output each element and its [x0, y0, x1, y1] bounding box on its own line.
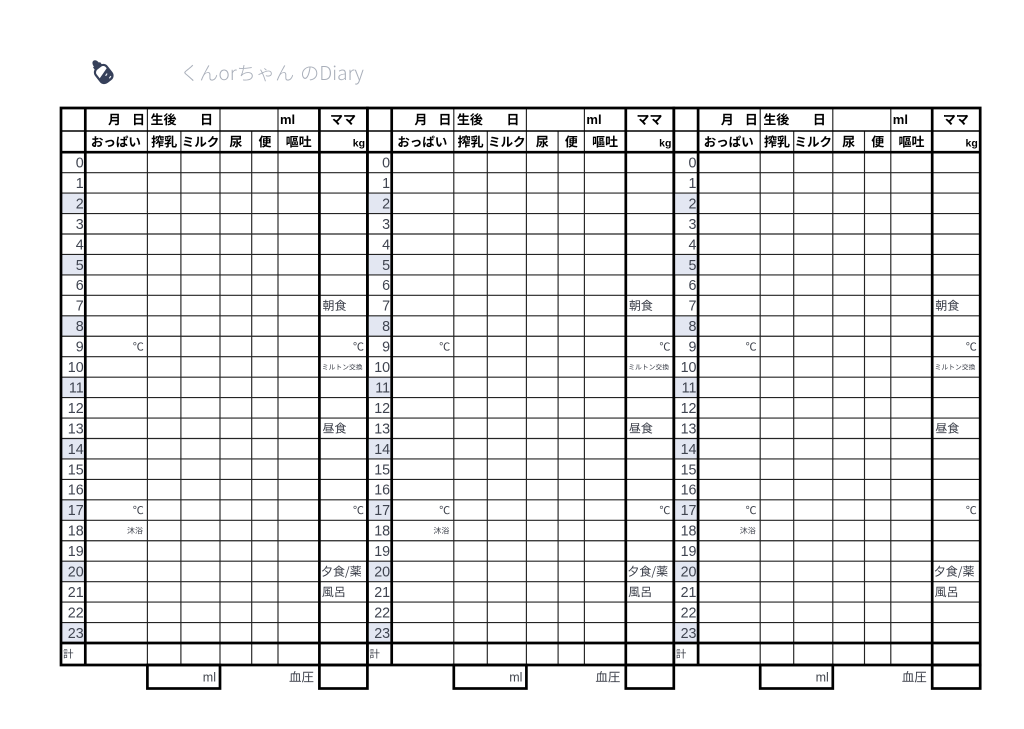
svg-text:9: 9: [382, 340, 390, 356]
svg-text:kg: kg: [353, 137, 365, 149]
svg-text:20: 20: [374, 565, 390, 581]
svg-text:ml: ml: [893, 112, 908, 127]
svg-text:14: 14: [374, 442, 390, 458]
svg-text:11: 11: [375, 380, 390, 396]
svg-text:16: 16: [681, 483, 697, 499]
svg-text:18: 18: [68, 524, 84, 540]
svg-text:2: 2: [382, 196, 390, 212]
svg-text:3: 3: [76, 217, 84, 233]
svg-text:15: 15: [681, 462, 697, 478]
svg-text:22: 22: [68, 605, 84, 621]
svg-text:kg: kg: [966, 137, 978, 149]
svg-text:0: 0: [382, 156, 390, 172]
svg-text:2: 2: [76, 196, 84, 212]
svg-text:1: 1: [382, 176, 390, 192]
svg-text:16: 16: [68, 483, 84, 499]
svg-text:8: 8: [382, 319, 390, 335]
svg-text:14: 14: [68, 442, 84, 458]
svg-text:3: 3: [689, 217, 697, 233]
svg-text:8: 8: [689, 319, 697, 335]
svg-text:16: 16: [374, 483, 390, 499]
svg-text:ml: ml: [509, 671, 522, 685]
svg-text:4: 4: [689, 237, 697, 253]
svg-text:6: 6: [382, 278, 390, 294]
svg-text:18: 18: [681, 524, 697, 540]
svg-text:9: 9: [76, 340, 84, 356]
svg-text:11: 11: [682, 380, 697, 396]
svg-text:17: 17: [68, 503, 84, 519]
svg-text:6: 6: [76, 278, 84, 294]
svg-text:23: 23: [68, 626, 84, 642]
svg-text:5: 5: [382, 258, 390, 274]
svg-text:1: 1: [689, 176, 697, 192]
svg-text:7: 7: [76, 299, 84, 315]
svg-text:15: 15: [68, 462, 84, 478]
svg-text:2: 2: [689, 196, 697, 212]
svg-text:23: 23: [374, 626, 390, 642]
svg-text:7: 7: [689, 299, 697, 315]
svg-text:13: 13: [374, 421, 390, 437]
svg-text:20: 20: [681, 565, 697, 581]
svg-text:5: 5: [76, 258, 84, 274]
svg-text:19: 19: [681, 544, 697, 560]
svg-text:17: 17: [374, 503, 390, 519]
svg-text:10: 10: [68, 360, 84, 376]
svg-text:0: 0: [689, 156, 697, 172]
svg-text:13: 13: [681, 421, 697, 437]
svg-text:ml: ml: [816, 671, 829, 685]
svg-text:4: 4: [382, 237, 390, 253]
svg-text:kg: kg: [659, 137, 671, 149]
svg-text:18: 18: [374, 524, 390, 540]
svg-text:12: 12: [68, 401, 84, 417]
svg-text:12: 12: [681, 401, 697, 417]
svg-text:1: 1: [76, 176, 84, 192]
svg-text:5: 5: [689, 258, 697, 274]
svg-text:19: 19: [374, 544, 390, 560]
svg-text:4: 4: [76, 237, 84, 253]
svg-text:23: 23: [681, 626, 697, 642]
svg-text:7: 7: [382, 299, 390, 315]
svg-text:9: 9: [689, 340, 697, 356]
svg-text:8: 8: [76, 319, 84, 335]
svg-text:13: 13: [68, 421, 84, 437]
svg-text:20: 20: [68, 565, 84, 581]
svg-text:10: 10: [374, 360, 390, 376]
svg-text:15: 15: [374, 462, 390, 478]
svg-text:11: 11: [69, 380, 84, 396]
svg-text:ml: ml: [280, 112, 295, 127]
svg-text:0: 0: [76, 156, 84, 172]
svg-text:ml: ml: [586, 112, 601, 127]
svg-text:19: 19: [68, 544, 84, 560]
svg-text:10: 10: [681, 360, 697, 376]
svg-text:ml: ml: [203, 671, 216, 685]
svg-text:12: 12: [374, 401, 390, 417]
svg-text:14: 14: [681, 442, 697, 458]
svg-text:6: 6: [689, 278, 697, 294]
svg-text:22: 22: [681, 605, 697, 621]
svg-text:21: 21: [374, 585, 390, 601]
svg-text:17: 17: [681, 503, 697, 519]
svg-text:3: 3: [382, 217, 390, 233]
svg-text:21: 21: [681, 585, 697, 601]
svg-text:22: 22: [374, 605, 390, 621]
svg-text:21: 21: [68, 585, 84, 601]
